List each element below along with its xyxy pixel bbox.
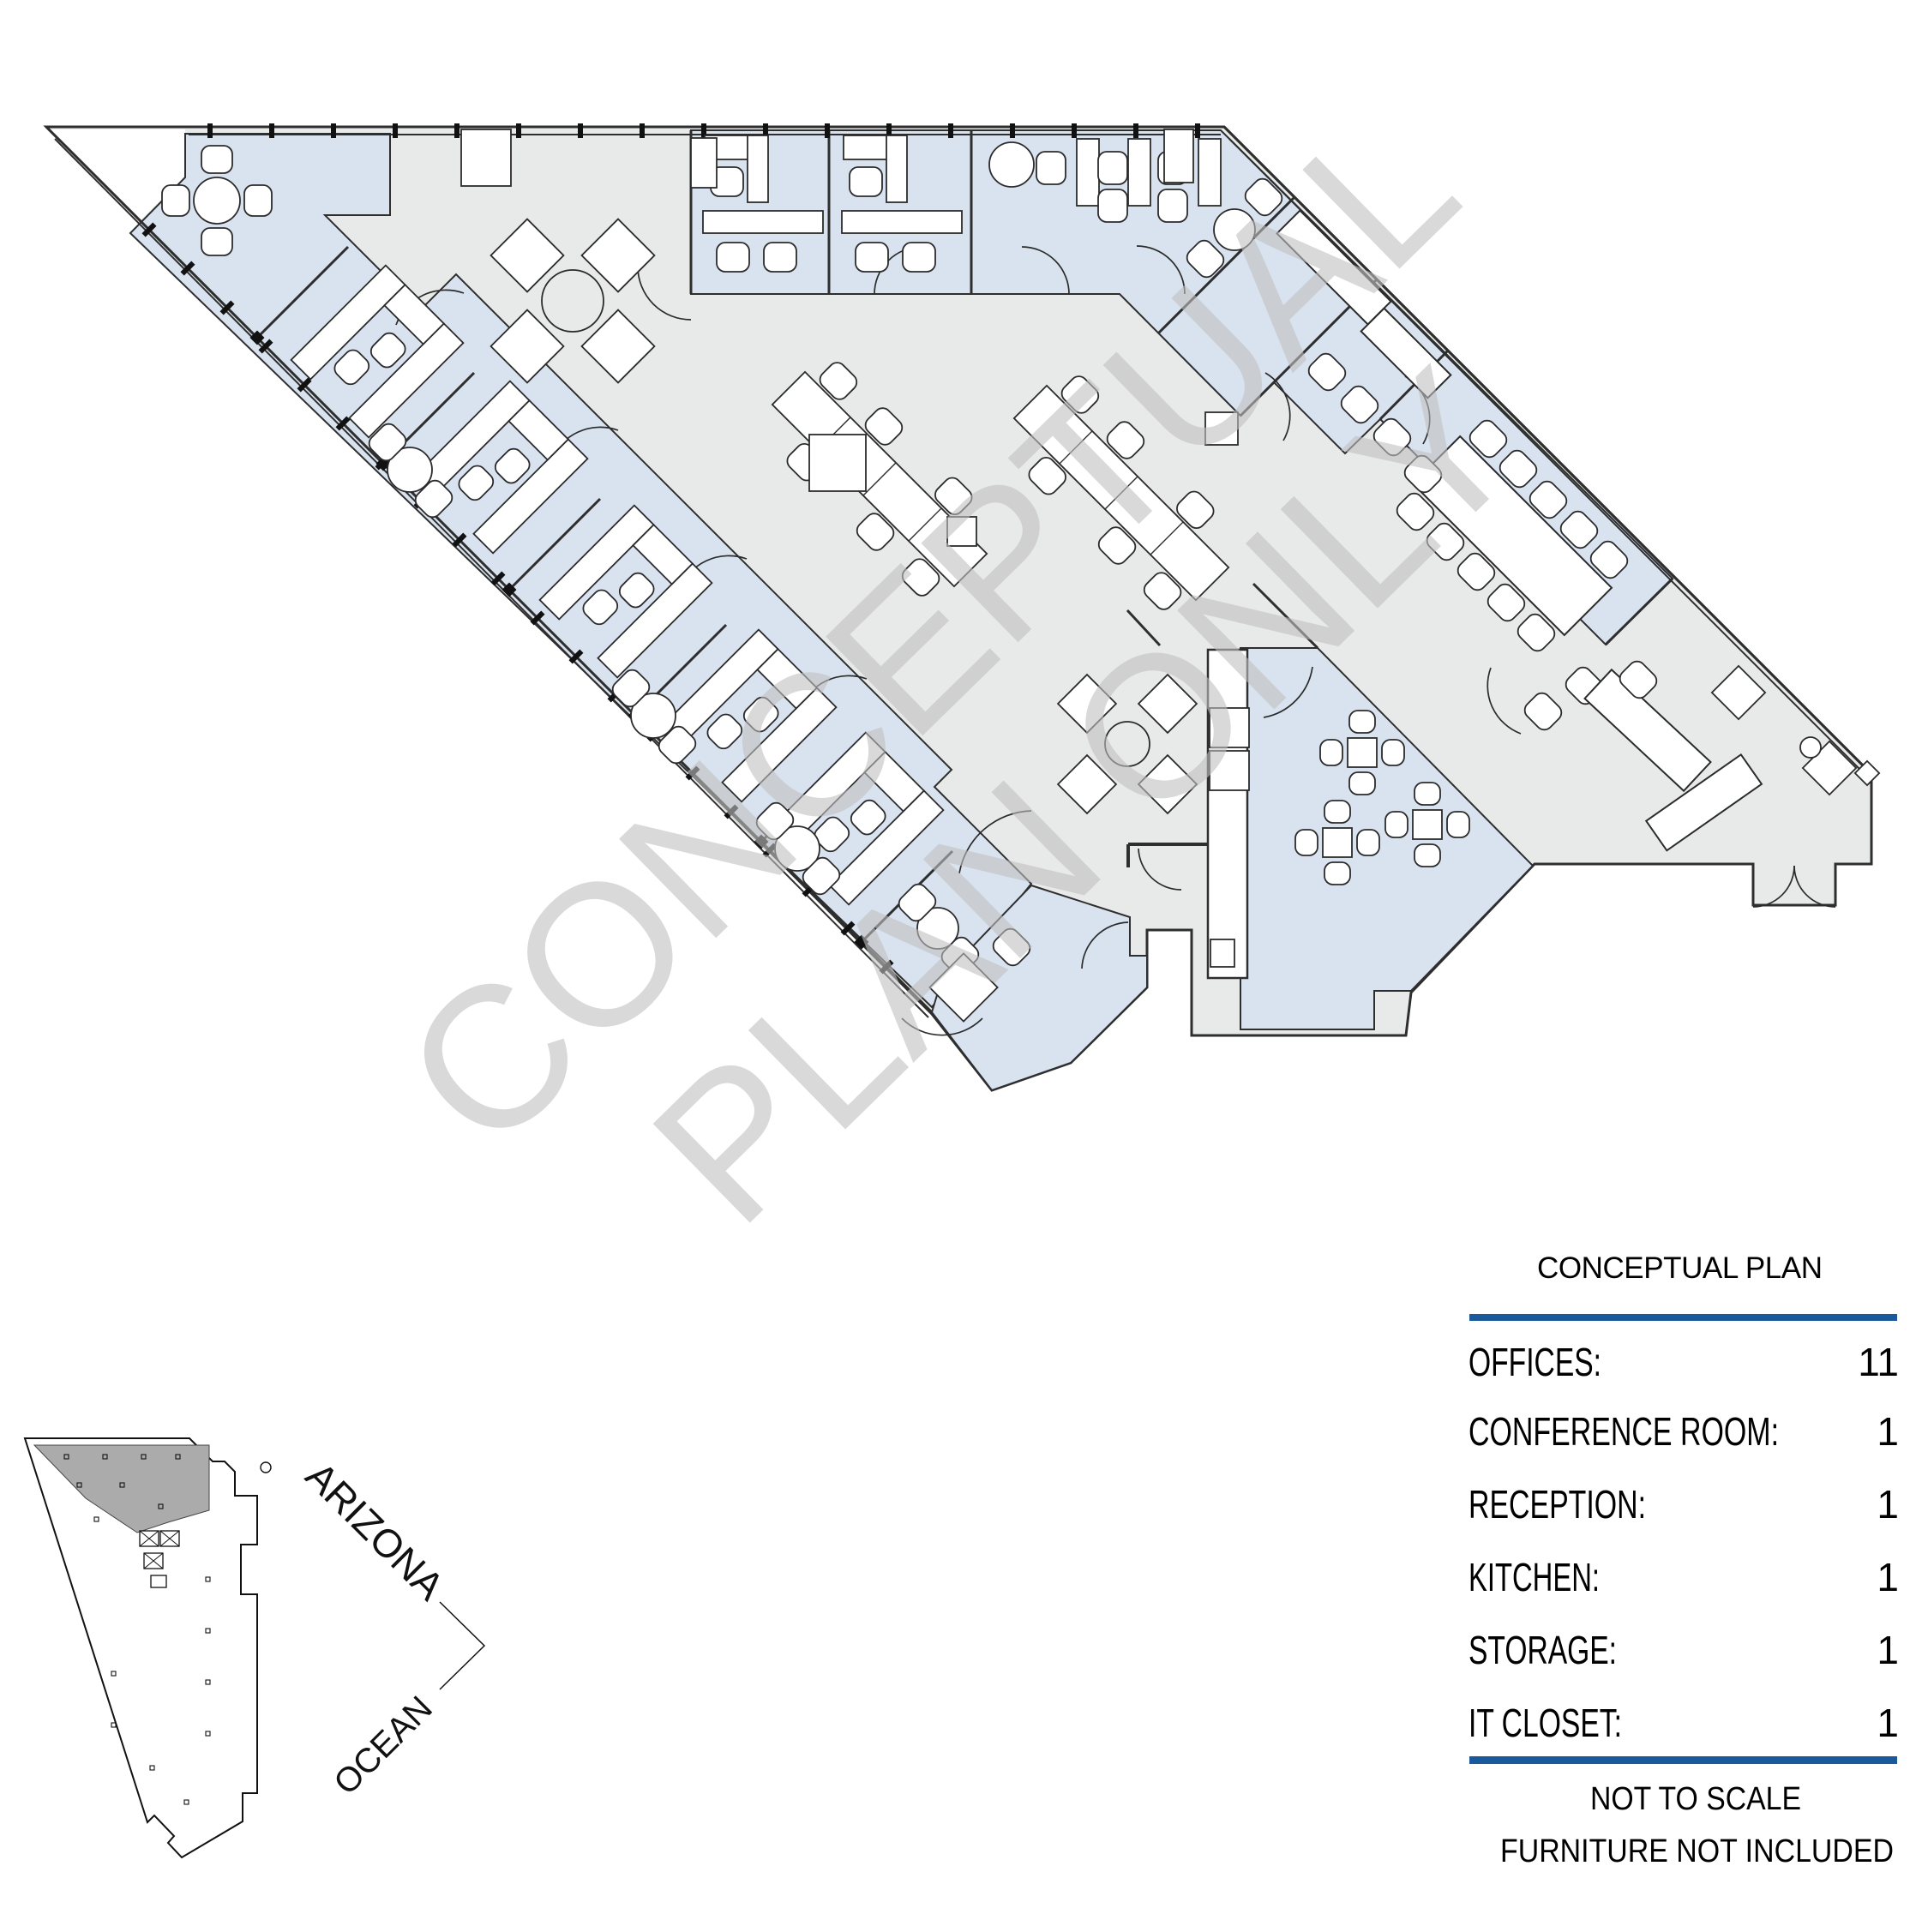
svg-text:ARIZONA: ARIZONA [297, 1453, 453, 1609]
svg-text:NOT TO SCALE: NOT TO SCALE [1590, 1781, 1801, 1817]
svg-text:IT CLOSET:: IT CLOSET: [1469, 1701, 1622, 1745]
svg-text:1: 1 [1877, 1628, 1899, 1672]
svg-text:RECEPTION:: RECEPTION: [1469, 1482, 1646, 1527]
svg-text:CONCEPTUAL PLAN: CONCEPTUAL PLAN [1537, 1251, 1823, 1285]
svg-text:STORAGE:: STORAGE: [1469, 1628, 1617, 1672]
svg-text:OFFICES:: OFFICES: [1469, 1340, 1601, 1384]
svg-text:OCEAN: OCEAN [327, 1689, 440, 1803]
svg-text:FURNITURE NOT INCLUDED: FURNITURE NOT INCLUDED [1500, 1833, 1894, 1869]
svg-text:1: 1 [1877, 1555, 1899, 1599]
svg-text:1: 1 [1877, 1409, 1899, 1454]
svg-text:11: 11 [1858, 1340, 1899, 1384]
svg-text:1: 1 [1877, 1701, 1899, 1745]
svg-text:1: 1 [1877, 1482, 1899, 1527]
svg-text:CONFERENCE ROOM:: CONFERENCE ROOM: [1469, 1409, 1779, 1454]
svg-text:KITCHEN:: KITCHEN: [1469, 1555, 1600, 1599]
